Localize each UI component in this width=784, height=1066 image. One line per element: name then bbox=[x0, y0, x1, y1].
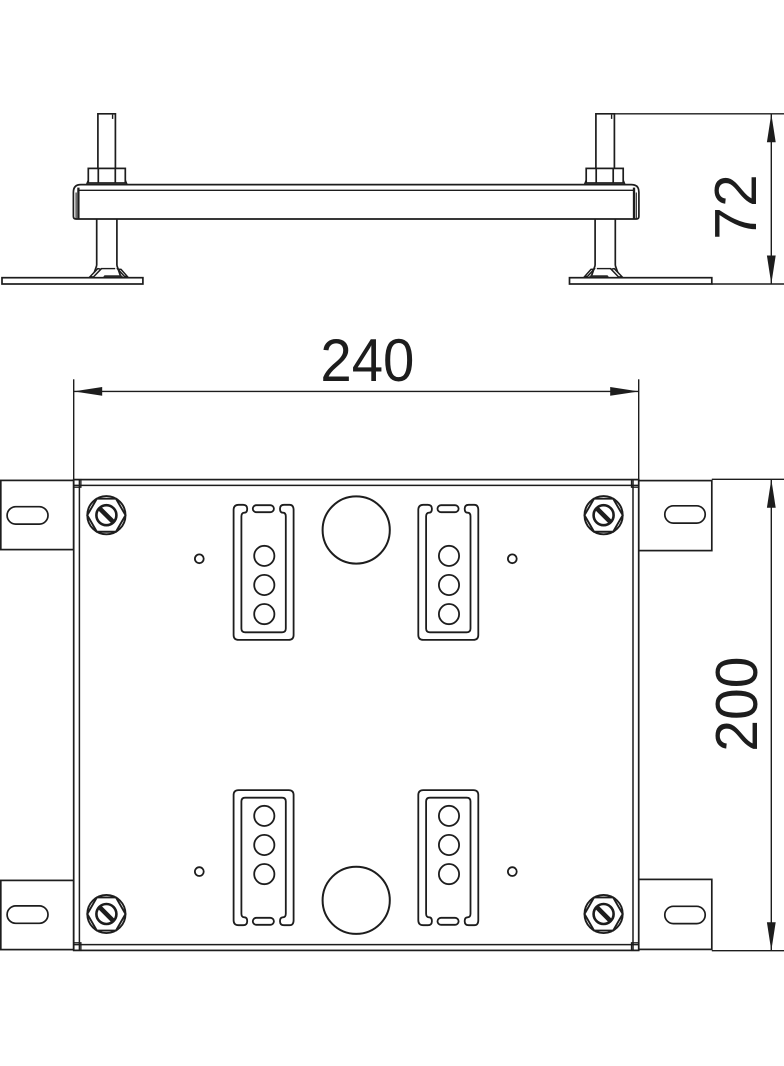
svg-text:200: 200 bbox=[703, 657, 770, 752]
svg-text:72: 72 bbox=[702, 174, 769, 240]
svg-text:240: 240 bbox=[320, 326, 414, 394]
